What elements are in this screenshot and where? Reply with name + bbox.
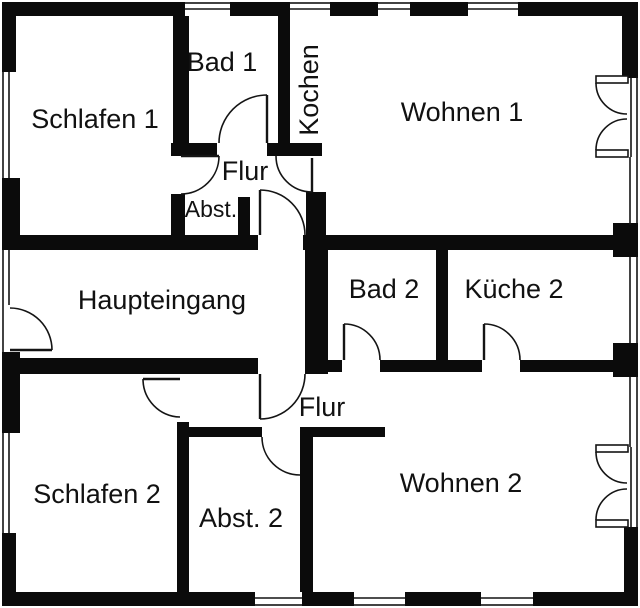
- french-door-wohnen1: [596, 76, 631, 157]
- room-label-kochen: Kochen: [294, 44, 324, 136]
- room-label-haupteingang: Haupteingang: [78, 285, 246, 315]
- door-arc-abst2: [262, 437, 300, 475]
- room-label-kueche2: Küche 2: [464, 274, 563, 304]
- room-label-schlafen2: Schlafen 2: [33, 479, 161, 509]
- door-arc-wohnen1: [276, 156, 312, 192]
- room-label-flur2: Flur: [299, 392, 346, 422]
- room-label-wohnen2: Wohnen 2: [400, 468, 523, 498]
- room-labels: Schlafen 1 Bad 1 Kochen Wohnen 1 Flur Ab…: [31, 44, 563, 533]
- door-arc-schlafen1: [181, 156, 219, 194]
- french-doors: [596, 76, 631, 527]
- door-arc-schlafen2: [143, 379, 180, 417]
- floor-plan: Schlafen 1 Bad 1 Kochen Wohnen 1 Flur Ab…: [0, 0, 640, 608]
- room-label-wohnen1: Wohnen 1: [401, 97, 524, 127]
- door-arc-bad2: [344, 324, 380, 360]
- room-label-bad1: Bad 1: [187, 47, 258, 77]
- door-arc-haupteingang-upper: [260, 190, 305, 235]
- room-label-schlafen1: Schlafen 1: [31, 104, 159, 134]
- door-arc-kueche2: [484, 324, 520, 360]
- french-door-wohnen2: [596, 445, 631, 527]
- room-label-abst2: Abst. 2: [199, 503, 283, 533]
- room-label-abst1: Abst.: [185, 196, 237, 222]
- door-arc-entrance: [10, 308, 52, 350]
- floor-plan-svg: Schlafen 1 Bad 1 Kochen Wohnen 1 Flur Ab…: [0, 0, 640, 608]
- door-arc-bad1: [219, 95, 267, 143]
- room-label-flur1: Flur: [222, 156, 269, 186]
- room-label-bad2: Bad 2: [349, 274, 420, 304]
